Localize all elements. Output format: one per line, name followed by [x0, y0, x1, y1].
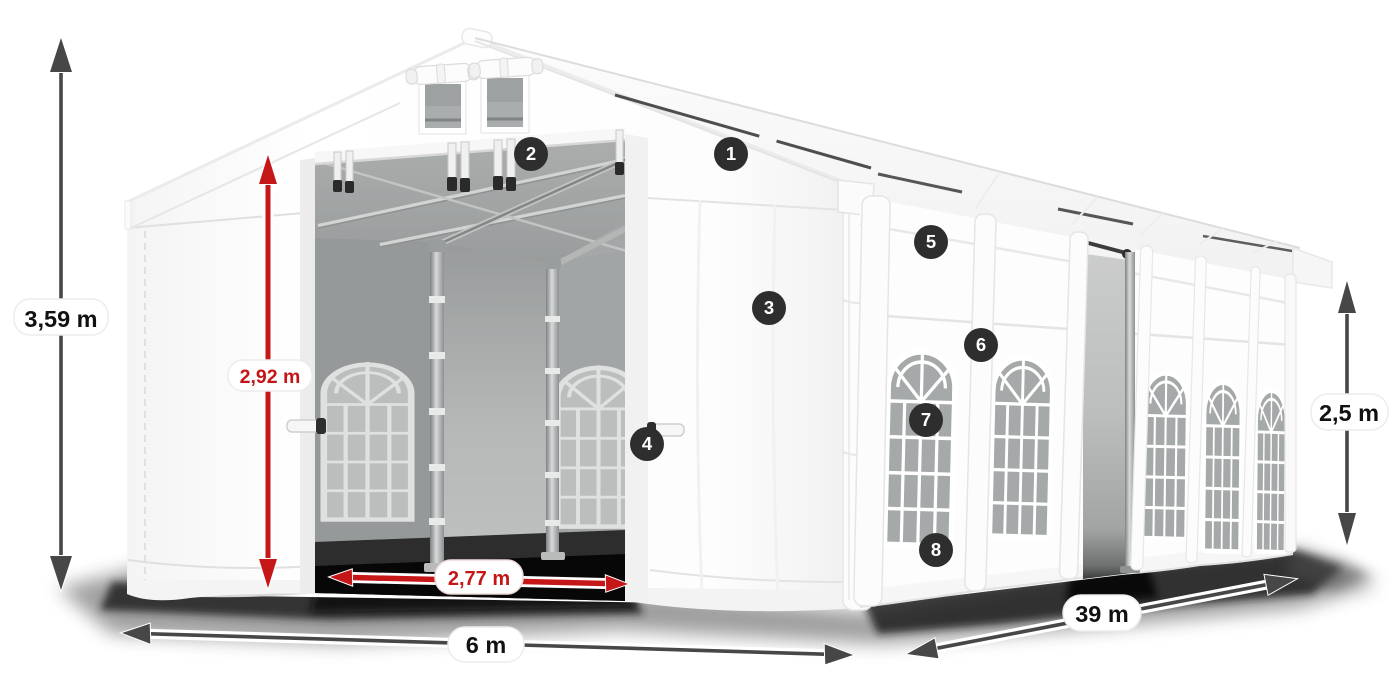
svg-text:4: 4: [642, 433, 653, 454]
svg-text:39 m: 39 m: [1075, 601, 1129, 627]
svg-text:5: 5: [926, 231, 936, 252]
svg-text:2: 2: [526, 143, 536, 164]
svg-text:1: 1: [726, 143, 736, 164]
svg-text:3,59 m: 3,59 m: [24, 306, 97, 332]
svg-text:3: 3: [764, 297, 774, 318]
svg-text:6 m: 6 m: [466, 632, 507, 658]
svg-text:8: 8: [931, 539, 941, 560]
svg-text:2,5 m: 2,5 m: [1319, 400, 1379, 426]
svg-text:6: 6: [976, 334, 986, 355]
svg-text:7: 7: [921, 409, 931, 430]
svg-text:2,92 m: 2,92 m: [240, 366, 301, 388]
svg-text:2,77 m: 2,77 m: [448, 568, 510, 590]
